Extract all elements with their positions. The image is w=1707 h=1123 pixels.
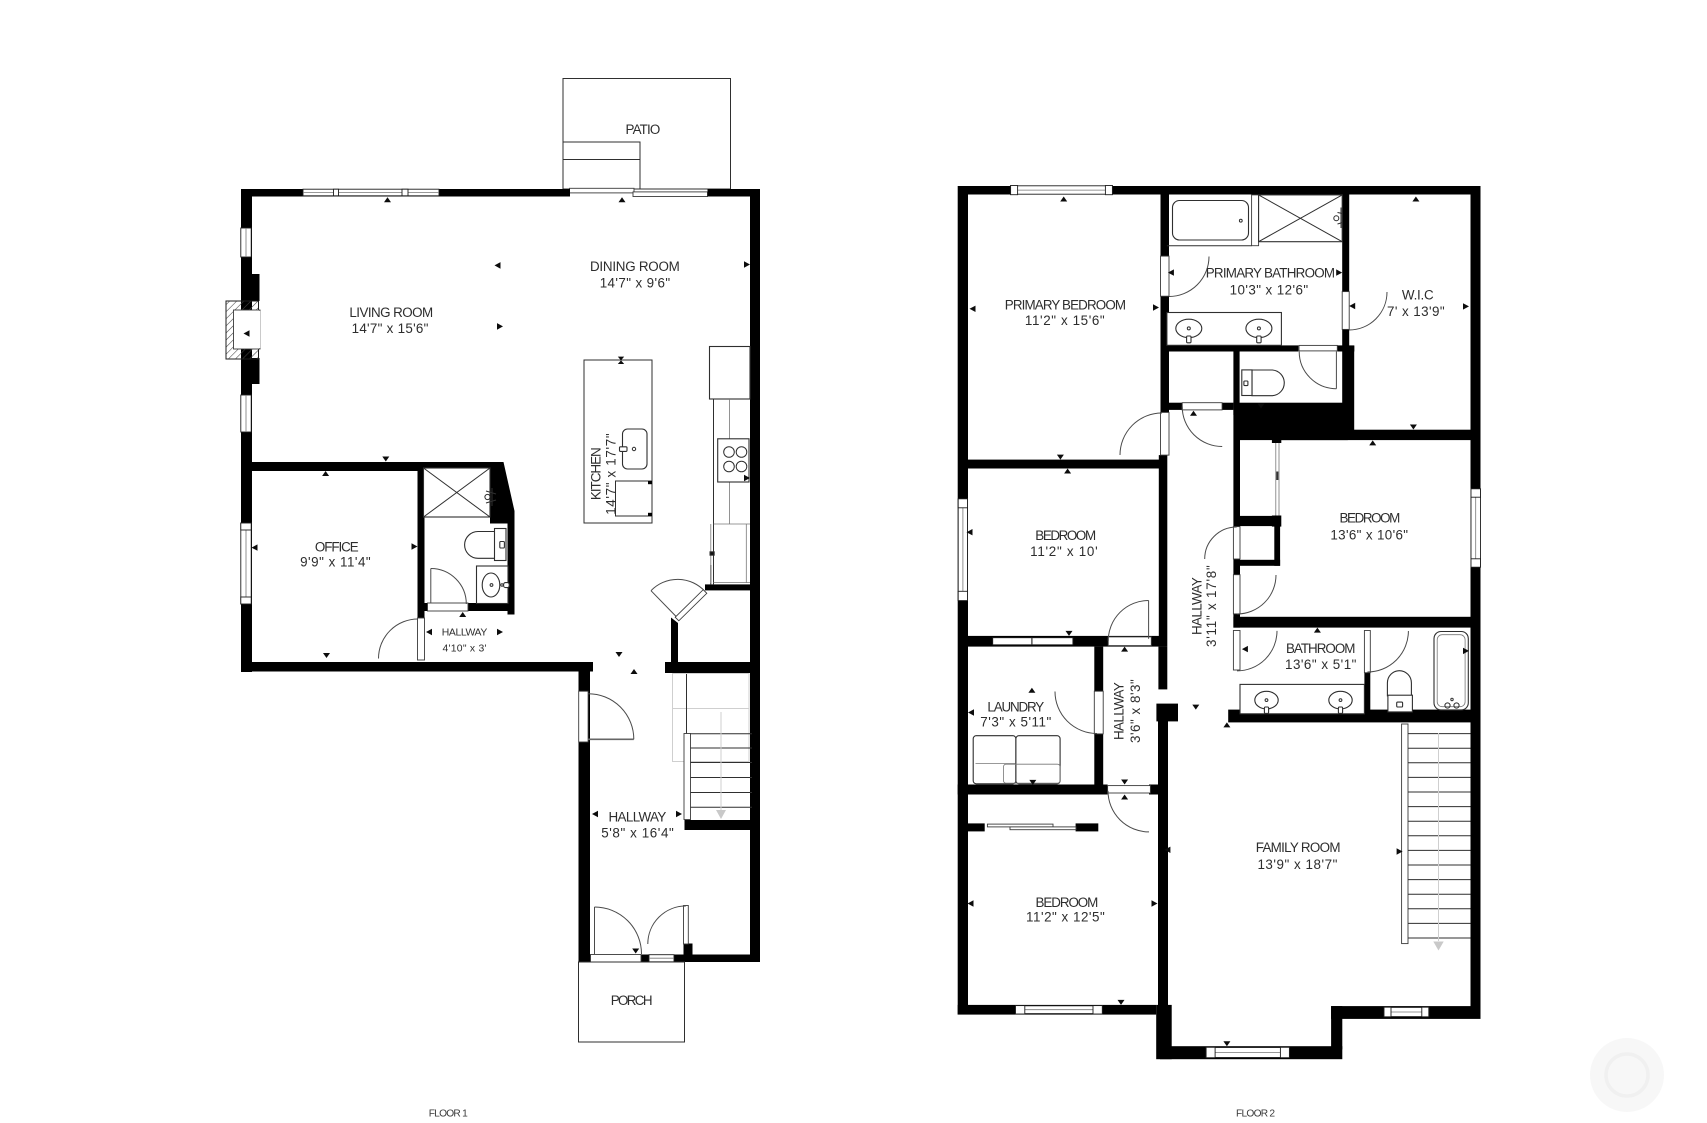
svg-text:DINING ROOM: DINING ROOM [590, 259, 680, 274]
svg-text:9'9" x 11'4": 9'9" x 11'4" [300, 554, 371, 569]
svg-text:HALLWAY: HALLWAY [1189, 577, 1204, 635]
svg-text:13'6" x 5'1": 13'6" x 5'1" [1285, 657, 1357, 672]
svg-text:13'6" x 10'6": 13'6" x 10'6" [1330, 527, 1408, 542]
svg-text:PATIO: PATIO [626, 122, 661, 137]
svg-text:PORCH: PORCH [611, 993, 653, 1008]
svg-text:10'3" x 12'6": 10'3" x 12'6" [1230, 282, 1309, 297]
svg-text:HALLWAY: HALLWAY [442, 627, 488, 638]
svg-text:OFFICE: OFFICE [315, 540, 359, 555]
svg-text:5'8" x 16'4": 5'8" x 16'4" [601, 826, 674, 841]
svg-text:PRIMARY BATHROOM: PRIMARY BATHROOM [1206, 265, 1336, 280]
svg-text:3'11" x 17'8": 3'11" x 17'8" [1204, 565, 1219, 647]
svg-text:11'2" x 10': 11'2" x 10' [1030, 544, 1098, 559]
svg-text:4'10" x 3': 4'10" x 3' [443, 643, 487, 654]
svg-text:HALLWAY: HALLWAY [609, 810, 667, 825]
svg-text:3'6" x 8'3": 3'6" x 8'3" [1128, 679, 1143, 743]
svg-text:W.I.C: W.I.C [1402, 287, 1434, 302]
svg-text:BEDROOM: BEDROOM [1036, 895, 1099, 910]
svg-text:LIVING ROOM: LIVING ROOM [349, 305, 433, 320]
svg-text:FAMILY ROOM: FAMILY ROOM [1256, 840, 1341, 855]
svg-text:BEDROOM: BEDROOM [1035, 528, 1096, 543]
svg-text:FLOOR 2: FLOOR 2 [1236, 1109, 1276, 1120]
svg-text:HALLWAY: HALLWAY [1112, 682, 1127, 740]
svg-text:13'9" x 18'7": 13'9" x 18'7" [1257, 857, 1337, 872]
svg-text:PRIMARY BEDROOM: PRIMARY BEDROOM [1005, 298, 1127, 313]
svg-text:LAUNDRY: LAUNDRY [987, 700, 1044, 715]
svg-text:BEDROOM: BEDROOM [1340, 511, 1401, 526]
svg-text:BATHROOM: BATHROOM [1286, 641, 1356, 656]
svg-text:7'3" x 5'11": 7'3" x 5'11" [980, 714, 1051, 729]
svg-text:14'7" x 9'6": 14'7" x 9'6" [600, 276, 671, 291]
svg-text:7' x 13'9": 7' x 13'9" [1387, 304, 1445, 319]
svg-text:FLOOR 1: FLOOR 1 [429, 1109, 469, 1120]
svg-text:11'2" x 15'6": 11'2" x 15'6" [1025, 313, 1105, 328]
svg-text:11'2" x 12'5": 11'2" x 12'5" [1026, 910, 1105, 925]
svg-text:14'7" x 17'7": 14'7" x 17'7" [604, 433, 619, 515]
svg-text:KITCHEN: KITCHEN [588, 447, 603, 500]
svg-text:14'7" x 15'6": 14'7" x 15'6" [352, 321, 429, 336]
